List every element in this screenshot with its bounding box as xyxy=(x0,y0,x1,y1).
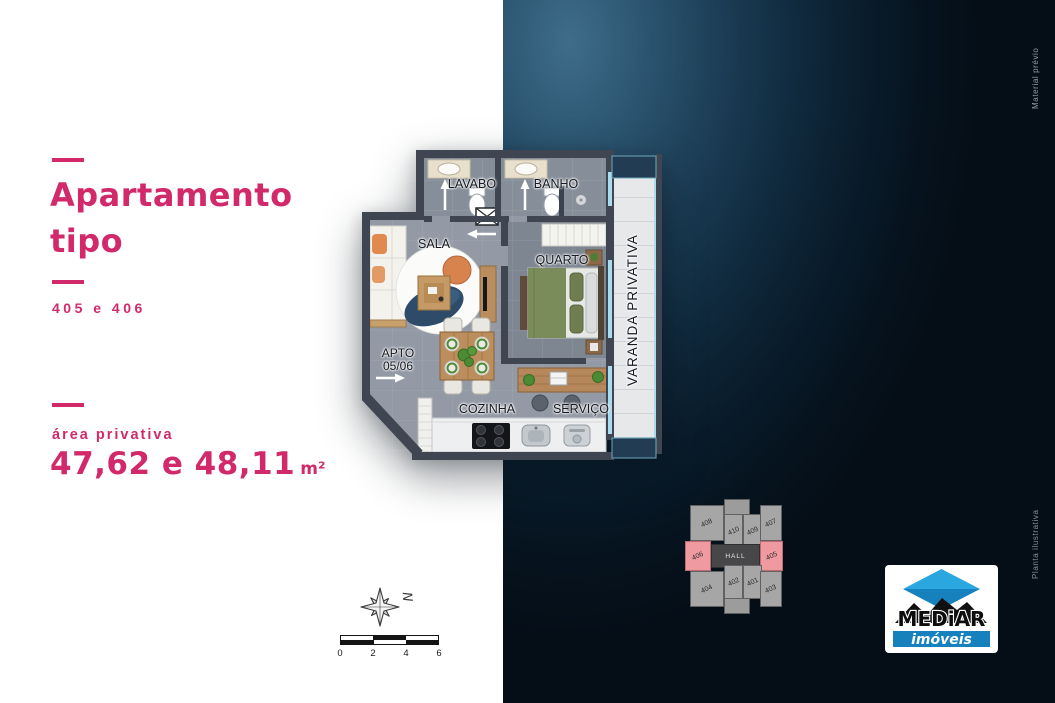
key-plan-core-bottom xyxy=(724,598,750,614)
private-area-row: 47,62 e 48,11m² xyxy=(50,446,325,482)
compass-rose-icon: N xyxy=(352,586,422,637)
room-label-servico: SERVIÇO xyxy=(536,402,626,416)
unit-numbers-subtitle: 405 e 406 xyxy=(52,300,146,316)
private-area-label: área privativa xyxy=(52,427,174,443)
watermark-material-previo: Material prévio xyxy=(1031,42,1040,114)
room-label-banho: BANHO xyxy=(511,177,601,191)
room-label-quarto: QUARTO xyxy=(517,253,607,267)
compass-north-label: N xyxy=(399,591,415,602)
key-plan-unit-404: 404 xyxy=(690,571,724,607)
scale-tick-6: 6 xyxy=(433,648,445,659)
floor-plan: LAVABO BANHO SALA QUARTO COZINHA SERVIÇO… xyxy=(362,150,662,462)
mediar-brand-text: MEDiAR xyxy=(898,607,986,631)
scale-tick-2: 2 xyxy=(367,648,379,659)
key-plan-unit-405-highlighted: 405 xyxy=(760,541,783,571)
scale-tick-4: 4 xyxy=(400,648,412,659)
room-label-varanda: VARANDA PRIVATIVA xyxy=(625,205,643,415)
private-area-unit: m² xyxy=(300,459,325,479)
key-plan-unit-403: 403 xyxy=(760,571,782,607)
apto-label-line2: 05/06 xyxy=(353,360,443,373)
mediar-tagline-text: imóveis xyxy=(911,632,972,648)
room-label-sala: SALA xyxy=(389,237,479,251)
room-label-cozinha: COZINHA xyxy=(442,402,532,416)
scale-tick-0: 0 xyxy=(334,648,346,659)
room-label-lavabo: LAVABO xyxy=(427,177,517,191)
key-plan-unit-408: 408 xyxy=(690,505,724,541)
key-plan-unit-406-highlighted: 406 xyxy=(685,541,711,571)
accent-dash-middle xyxy=(52,280,84,284)
private-area-value: 47,62 e 48,11 xyxy=(50,446,295,482)
scale-bar-segment xyxy=(373,636,406,640)
accent-dash-area xyxy=(52,403,84,407)
room-label-apto: APTO 05/06 xyxy=(353,347,443,373)
brochure-page: Apartamento tipo 405 e 406 área privativ… xyxy=(0,0,1055,703)
mediar-logo: MEDiAR imóveis xyxy=(885,565,998,653)
accent-dash-top xyxy=(52,158,84,162)
watermark-planta-ilustrativa: Planta ilustrativa xyxy=(1031,505,1040,583)
scale-bar-segment xyxy=(341,640,374,644)
page-title-line1: Apartamento xyxy=(50,176,293,214)
scale-bar-segment xyxy=(406,640,439,644)
key-plan-unit-402: 402 xyxy=(724,565,743,599)
scale-bar xyxy=(340,635,439,645)
key-plan-core-top xyxy=(724,499,750,515)
key-plan-unit-407: 407 xyxy=(760,505,782,541)
page-title-line2: tipo xyxy=(50,222,123,260)
key-plan: 408 410 409 407 406 HALL 405 404 402 401… xyxy=(684,499,784,614)
key-plan-unit-410: 410 xyxy=(724,514,743,548)
